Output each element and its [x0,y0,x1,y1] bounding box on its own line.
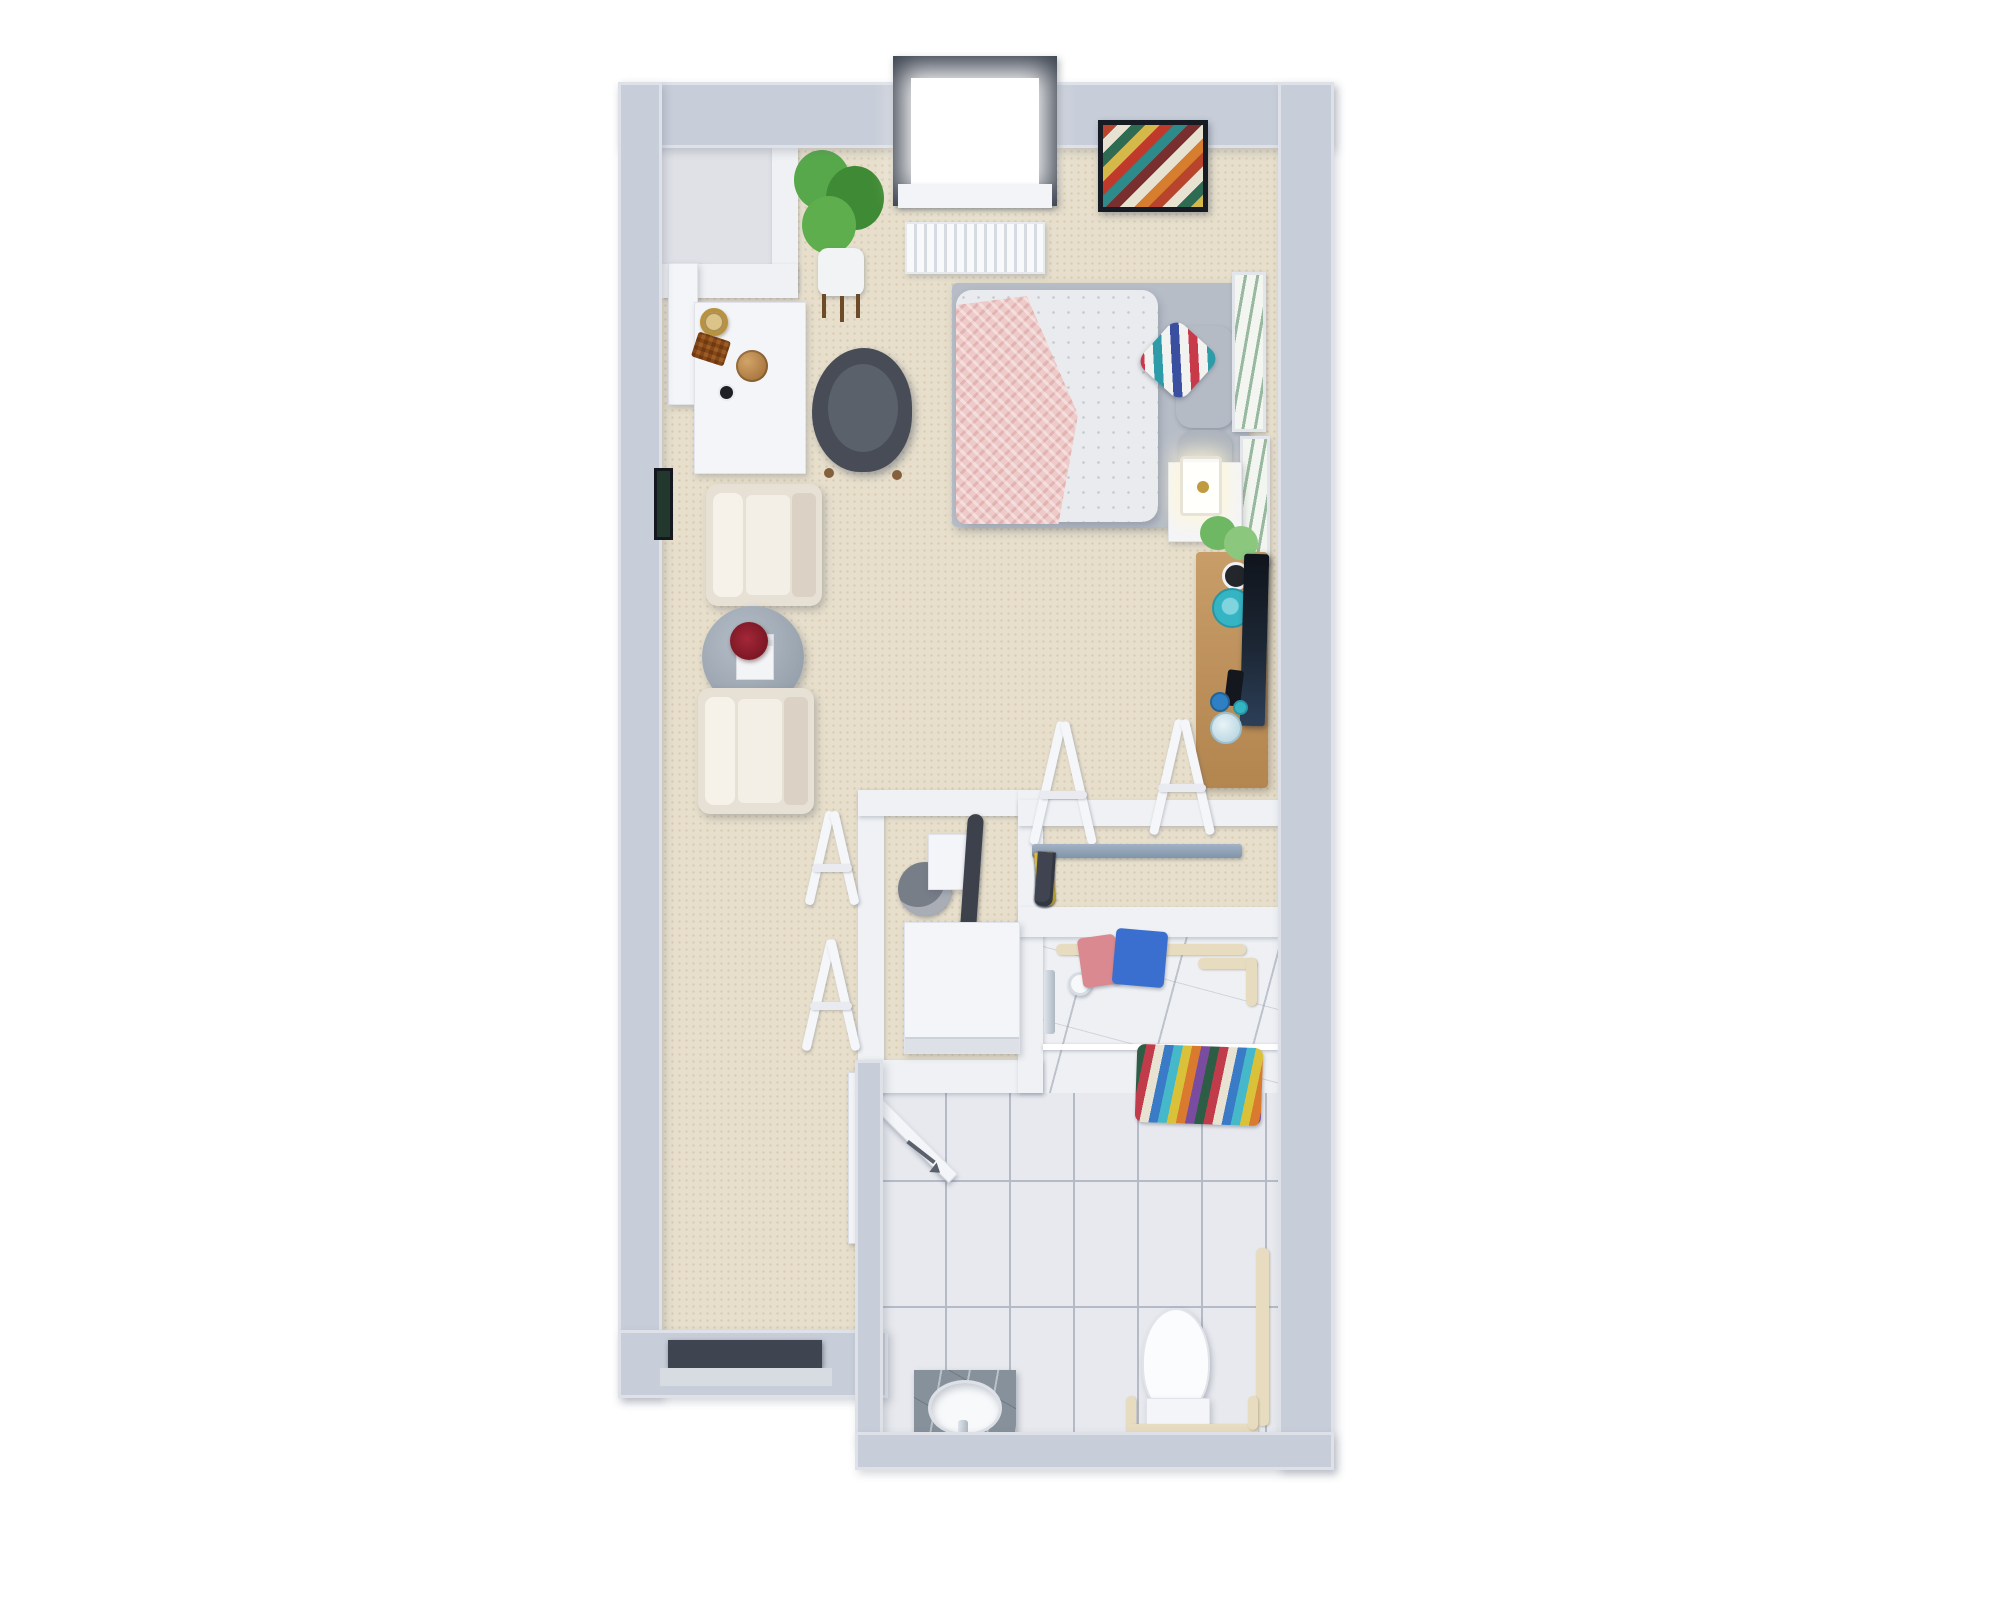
gallery-wall [654,468,702,708]
laundry-closet-top-wall [858,790,1043,816]
teal-vase [1233,700,1248,715]
folding-rack [802,938,860,1052]
rack-bar [829,810,859,906]
armchair-cushion [828,364,898,452]
washer-dryer [904,922,1020,1054]
lounge-armchair [698,688,814,814]
leaning-garment-rack [1148,718,1216,836]
wire-sphere-decor [736,350,768,382]
radiator [905,222,1045,274]
rack-crossbar [810,1002,852,1010]
toilet-grab-rail [1248,1396,1258,1430]
blue-towel [1112,928,1169,988]
brass-basket [700,308,728,336]
accent-armchair-dark [812,348,912,472]
lamp-bulb [1197,481,1209,493]
shower-fixture-bar [1044,970,1055,1034]
fiddle-leaf-plant [788,144,888,324]
rack-bar [1148,718,1183,835]
east-wall [1278,82,1334,1470]
plant-stand-leg [822,294,826,318]
rack-bar [1029,721,1066,846]
rack-bar [827,938,861,1051]
lounge-armchair [706,484,822,606]
leaning-garment-rack [1030,720,1096,846]
plant-pot [818,248,864,296]
plant-stand-leg [840,296,844,322]
armchair-seat [746,495,790,595]
bathroom-west-wall [855,1060,883,1445]
plant-stand-leg [856,294,860,318]
armchair-leg [824,468,834,478]
red-flower-centerpiece [730,622,768,660]
window-pane [911,78,1039,184]
floorplan-canvas [0,0,2000,1600]
armchair-front [784,697,808,805]
plant-foliage [802,196,856,254]
armchair-leg [892,470,902,480]
rack-crossbar [1039,791,1087,799]
botanical-print [1232,272,1266,432]
armchair-seat [738,699,782,803]
armchair-back-cushion [713,493,743,597]
armchair-back-cushion [705,697,735,805]
entry-threshold [660,1368,832,1386]
rack-bar [1180,718,1215,835]
chevron-wall-art [1098,120,1208,212]
towel-bar [1246,958,1257,1006]
lantern-lamp [1180,456,1222,516]
black-cup [718,384,735,401]
entry-nook-floor [662,148,772,270]
hanging-clothes-row [1036,852,1244,912]
washer-control-face [905,1037,1019,1053]
rack-crossbar [1158,784,1207,792]
gallery-frame [654,468,673,540]
entry-door [668,1340,822,1368]
rack-crossbar [812,864,852,872]
blue-vase [1210,692,1230,712]
west-wall [618,82,662,1398]
bathroom-south-wall [855,1432,1334,1470]
folding-rack [804,810,860,906]
window-sill [898,184,1052,208]
hanging-garment [1034,851,1056,906]
rack-bar [1060,721,1097,846]
armchair-front [792,493,816,597]
serape-striped-towels [1135,1044,1264,1126]
laundry-closet-left-wall [858,790,884,1093]
laundry-closet-bottom-wall [858,1060,1043,1093]
rack-bar [805,810,835,906]
